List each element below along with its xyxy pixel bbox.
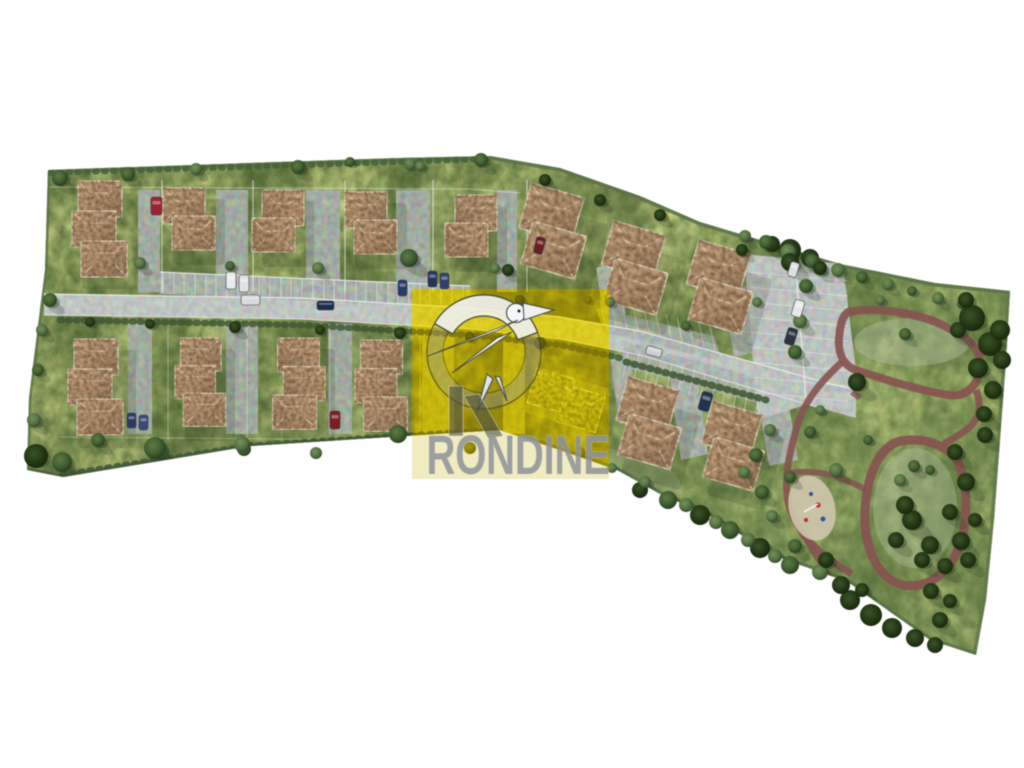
svg-text:RONDINE: RONDINE <box>426 425 609 487</box>
